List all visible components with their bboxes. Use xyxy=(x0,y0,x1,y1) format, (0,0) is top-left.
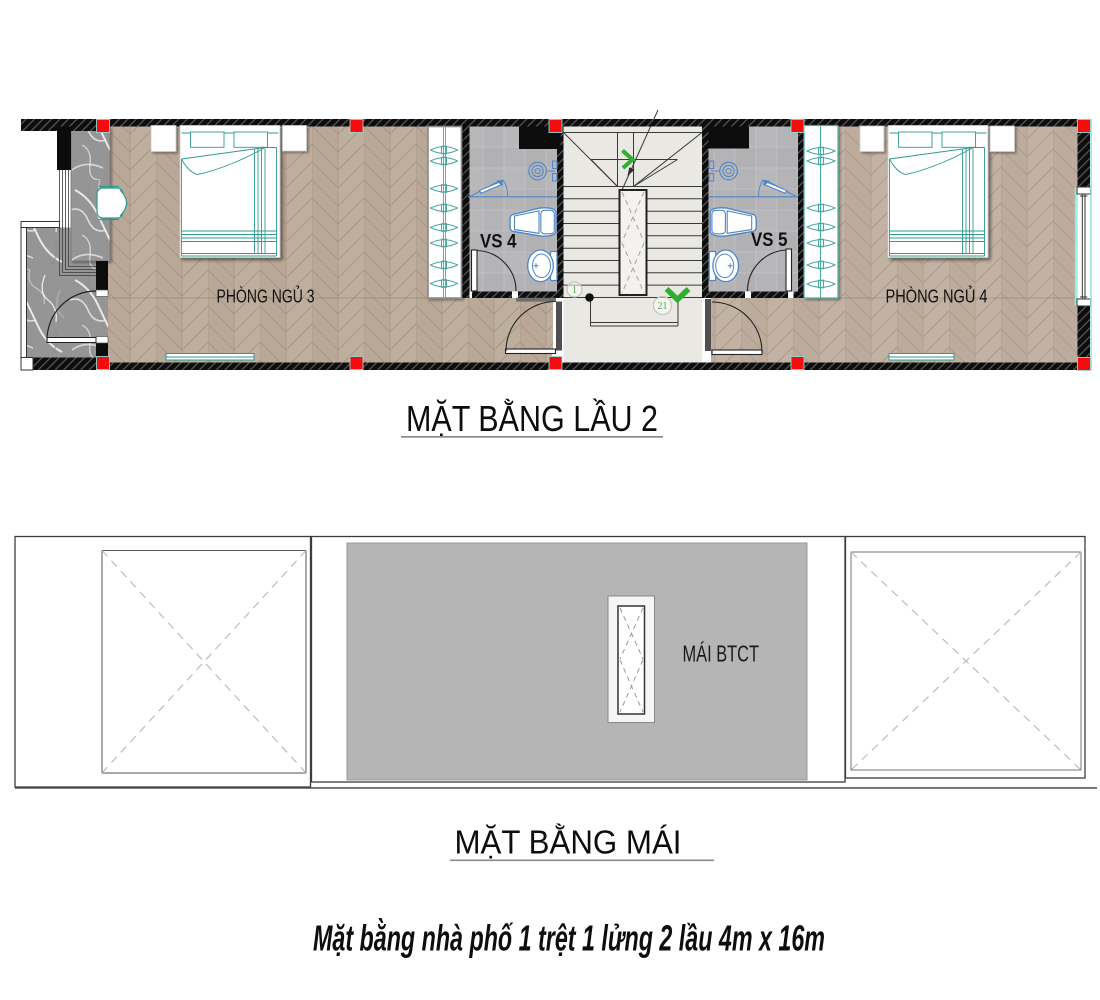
svg-text:VS 4: VS 4 xyxy=(480,232,517,253)
svg-text:PHÒNG NGỦ 4: PHÒNG NGỦ 4 xyxy=(886,286,988,307)
svg-text:21: 21 xyxy=(658,301,668,312)
svg-text:1: 1 xyxy=(572,285,577,296)
svg-text:Mặt bằng nhà phố 1 trệt 1 lửn: Mặt bằng nhà phố 1 trệt 1 lửng 2 lầu 4m … xyxy=(313,917,825,959)
svg-text:VS 5: VS 5 xyxy=(751,230,788,251)
svg-text:MẶT BẰNG MÁI: MẶT BẰNG MÁI xyxy=(455,824,682,861)
svg-text:MÁI BTCT: MÁI BTCT xyxy=(683,641,760,667)
svg-text:MẶT BẰNG LẦU 2: MẶT BẰNG LẦU 2 xyxy=(406,398,658,439)
svg-text:PHÒNG NGỦ 3: PHÒNG NGỦ 3 xyxy=(217,286,315,307)
